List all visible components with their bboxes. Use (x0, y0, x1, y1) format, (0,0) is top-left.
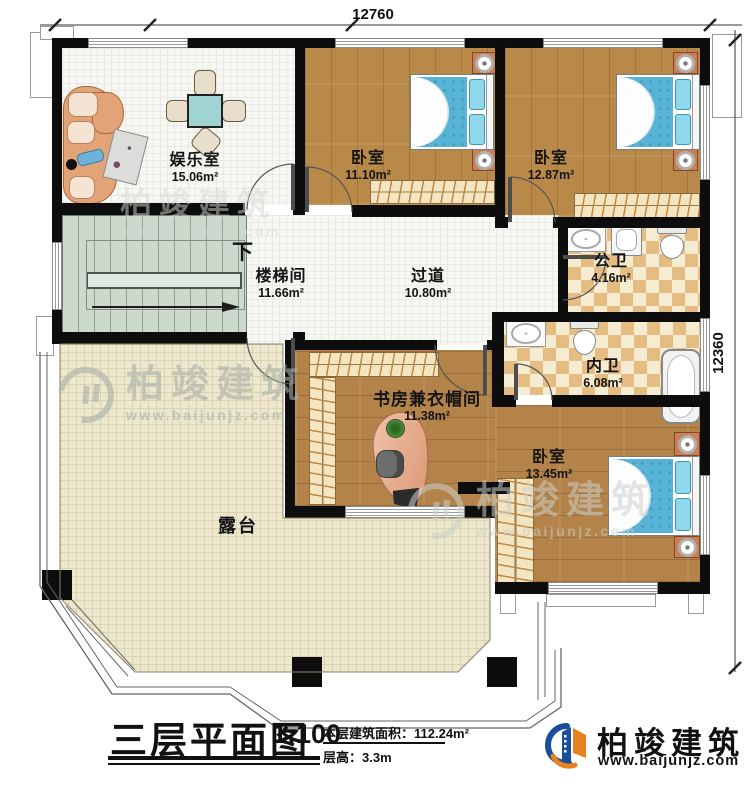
window-stairwell-left (52, 242, 62, 310)
washing-machine (611, 224, 642, 256)
wardrobe-bedroom1 (370, 180, 495, 204)
title-underline-thin (108, 763, 320, 765)
terrace-column-right (487, 657, 517, 687)
pillow (675, 498, 691, 531)
basin-icon (511, 323, 541, 344)
room-area: 6.08m² (558, 376, 648, 390)
room-label-bedroom3: 卧室 13.45m² (504, 449, 594, 481)
room-label-bedroom2: 卧室 12.87m² (506, 150, 596, 182)
nightstand (674, 536, 700, 558)
toilet-bowl (660, 235, 684, 259)
lamp-icon (676, 54, 695, 73)
window-bedroom2-right (700, 85, 710, 180)
room-area: 11.10m² (323, 168, 413, 182)
desk-chair (376, 450, 404, 478)
room-label-stairwell: 楼梯间 11.66m² (236, 268, 326, 300)
nightstand (673, 52, 698, 74)
room-label-study-cloakroom: 书房兼衣帽间 11.38m² (352, 390, 502, 423)
floor-height-text: 层高：3.3m (323, 747, 392, 766)
lamp-icon (676, 151, 695, 170)
bedroom3-sill-left (500, 593, 516, 614)
lamp-icon (678, 435, 697, 454)
exterior-ledge-top-right (712, 34, 742, 118)
wardrobe-bedroom3 (497, 478, 534, 586)
window-bedroom3-bottom (548, 582, 658, 594)
room-area: 12.87m² (506, 168, 596, 182)
room-name: 楼梯间 (236, 268, 326, 286)
sofa-cushion (67, 121, 95, 144)
room-name: 娱乐室 (150, 152, 240, 170)
room-area: 11.38m² (352, 409, 502, 423)
sofa-cushion (69, 176, 95, 199)
window-bedroom1-top (335, 38, 465, 48)
toilet-public-bath (657, 223, 687, 258)
title-underline-thick (108, 756, 320, 760)
pillow (675, 79, 691, 110)
sink-public-bath (566, 226, 606, 252)
room-name: 卧室 (506, 150, 596, 168)
toilet-ensuite (570, 318, 599, 354)
window-study-bottom (345, 506, 465, 518)
window-bedroom3-right (700, 475, 710, 555)
room-label-bedroom1: 卧室 11.10m² (323, 150, 413, 182)
window-ensuite-right (700, 318, 710, 392)
room-area: 4.16m² (566, 271, 656, 285)
lamp-icon (475, 54, 494, 73)
pillow (675, 114, 691, 145)
bedroom3-window-ledge (546, 594, 656, 607)
wall-study-bottom-left (285, 506, 345, 518)
person-head (66, 159, 77, 170)
room-label-entertainment: 娱乐室 15.06m² (150, 152, 240, 184)
room-name: 内卫 (558, 358, 648, 376)
nightstand (673, 149, 698, 171)
room-name: 露台 (198, 516, 278, 536)
dimension-top: 12760 (338, 6, 408, 23)
wall-stair-bottom (52, 332, 247, 344)
cloakroom-wardrobe-left (309, 377, 336, 505)
window-bedroom2-top (543, 38, 663, 48)
headboard (692, 75, 699, 149)
floor-area-text: 本层建筑面积：112.24m² (323, 723, 469, 742)
room-label-hallway: 过道 10.80m² (383, 268, 473, 300)
company-website: www.baijunjz.com (598, 753, 739, 769)
wall-bed3-bottom-left (495, 582, 548, 594)
dimension-right: 12360 (710, 303, 726, 403)
room-area: 10.80m² (383, 286, 473, 300)
bed-bedroom2 (616, 74, 700, 150)
floor-plan-canvas: 柏竣建筑 www.baijunjz.com 柏竣建筑 www.baijunjz.… (0, 0, 750, 787)
info-divider-line (323, 742, 445, 744)
lamp-icon (678, 538, 697, 557)
wall-entertainment-bottom (52, 203, 245, 215)
bed-bedroom1 (410, 74, 494, 150)
nightstand (472, 149, 497, 171)
wall-study-left (285, 350, 295, 518)
terrace-column-mid (292, 657, 322, 687)
sink-ensuite (506, 320, 546, 347)
pillow (469, 114, 485, 145)
cloakroom-wardrobe-top (309, 352, 439, 377)
basin-icon (571, 229, 601, 249)
wall-study-bottom-right (465, 506, 495, 518)
headboard (486, 75, 493, 149)
wall-bed1-bed2 (495, 48, 505, 217)
room-area: 11.66m² (236, 286, 326, 300)
pillow (469, 79, 485, 110)
bathtub (661, 349, 701, 424)
wall-study-top (285, 340, 437, 350)
room-name: 过道 (383, 268, 473, 286)
window-entertainment-top (88, 38, 188, 48)
bed-bedroom3 (608, 456, 700, 536)
chair-top (194, 70, 216, 96)
lamp-icon (475, 151, 494, 170)
game-table (187, 94, 223, 128)
washer-drum (616, 229, 637, 251)
wall-ent-bed1 (295, 48, 305, 203)
sofa-cushion (68, 92, 98, 117)
wall-bed1-bottom (352, 205, 495, 217)
terrace-column-left (42, 570, 72, 600)
company-logo-icon (543, 716, 595, 772)
pillow (675, 461, 691, 494)
wall-ensuite-bottom-right (552, 395, 710, 407)
nightstand (674, 432, 700, 456)
room-label-terrace: 露台 (198, 516, 278, 536)
bedroom3-sill-right (688, 593, 704, 614)
room-label-ensuite-bath: 内卫 6.08m² (558, 358, 648, 390)
wall-bed3-bottom-right (658, 582, 710, 594)
stairs-down-label: 下 (232, 236, 253, 266)
room-area: 15.06m² (150, 170, 240, 184)
toilet-bowl (573, 330, 596, 355)
chair-right (222, 100, 246, 122)
wall-study-top-stub (487, 340, 495, 350)
room-name: 书房兼衣帽间 (352, 390, 502, 409)
room-area: 13.45m² (504, 467, 594, 481)
headboard (692, 457, 699, 535)
stair-guide-line (86, 240, 245, 310)
room-name: 卧室 (323, 150, 413, 168)
wall-entertainment-bottom-stub (293, 203, 305, 215)
wall-bed2-bottom-left (495, 217, 508, 228)
bathtub-inner (667, 355, 695, 418)
wall-bed2-bottom-right (553, 217, 710, 228)
room-label-public-bath: 公卫 4.16m² (566, 253, 656, 285)
wardrobe-bedroom2 (574, 193, 700, 218)
nightstand (472, 52, 497, 74)
room-name: 公卫 (566, 253, 656, 271)
wall-study-bed3-stub (458, 482, 510, 494)
room-name: 卧室 (504, 449, 594, 467)
wall-bath-divider (492, 312, 710, 322)
